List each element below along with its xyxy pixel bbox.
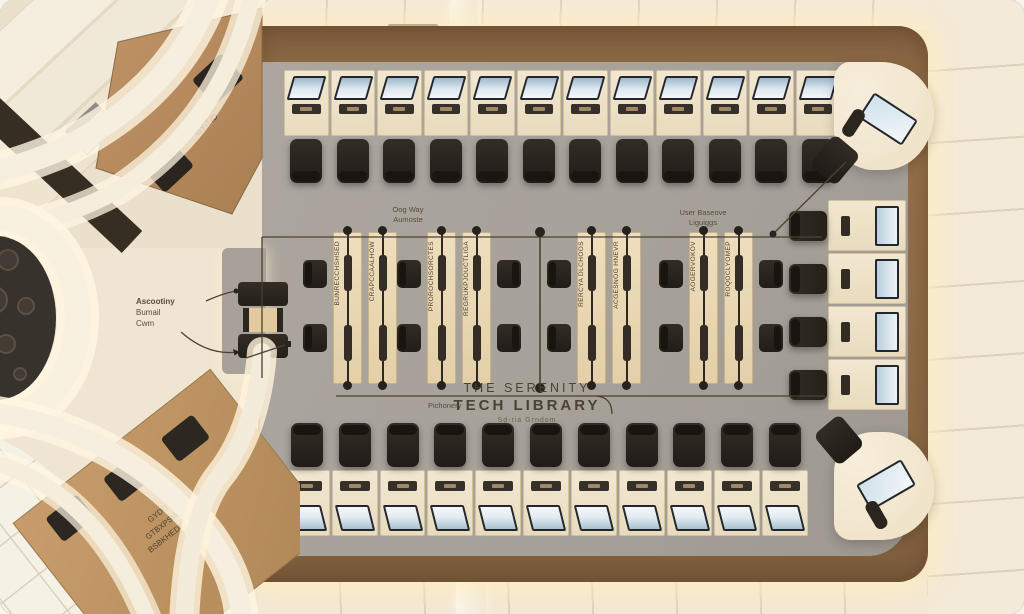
- right-station-bank: [828, 200, 906, 410]
- screen-glass: [385, 507, 420, 529]
- study-table: REGRUKPJOUCTLIGA: [462, 232, 491, 384]
- keyboard-tray: [722, 481, 752, 491]
- table-label: ROQOCLYOMEP: [725, 241, 732, 297]
- workstation: [610, 70, 655, 136]
- counter-top: [284, 70, 840, 136]
- workstation: [828, 359, 906, 410]
- chair: [789, 317, 827, 347]
- workstation: [762, 470, 808, 536]
- desk-device: [841, 269, 850, 289]
- screen-glass: [615, 78, 649, 98]
- title-line-1: THE SERENITY: [422, 381, 632, 395]
- chair: [192, 53, 244, 105]
- workstation: [424, 70, 469, 136]
- chair: [387, 423, 419, 467]
- desk-device: [841, 216, 850, 236]
- workstation: [284, 70, 329, 136]
- keyboard-tray: [435, 481, 465, 491]
- monitor-screen: [612, 76, 651, 100]
- workstation: [470, 70, 515, 136]
- screen-glass: [382, 78, 416, 98]
- tablet-screen: [858, 92, 918, 145]
- monitor-screen: [705, 76, 744, 100]
- chair: [547, 324, 571, 352]
- monitor-screen: [473, 76, 512, 100]
- monitor-screen: [382, 505, 422, 531]
- monitor-screen: [333, 76, 372, 100]
- callout-left: Ascootiny Bumail Cwm: [136, 297, 175, 329]
- callout-top-left: Oog Way Aumoste: [368, 205, 448, 225]
- screen-glass: [661, 78, 695, 98]
- study-table: RERCYA DLCHOOS: [577, 232, 606, 384]
- study-table: ACGESNOG HNEVR: [612, 232, 641, 384]
- desk-device: [863, 499, 889, 531]
- table-end-dot: [587, 226, 596, 235]
- screen-glass: [877, 314, 897, 350]
- monitor-screen: [765, 505, 805, 531]
- desk-device: [841, 322, 850, 342]
- title-line-2: TECH LIBRARY: [422, 397, 632, 414]
- workstation: [517, 70, 562, 136]
- table-lamp: [344, 255, 352, 291]
- keyboard-tray: [339, 104, 368, 114]
- table-lamp: [588, 325, 596, 361]
- keyboard-tray: [711, 104, 740, 114]
- screen-glass: [720, 507, 755, 529]
- monitor-screen: [566, 76, 605, 100]
- chair: [709, 139, 741, 183]
- table-label: BUNRECCHSHSED: [334, 241, 341, 305]
- chair: [238, 334, 288, 358]
- monitor-screen: [519, 76, 558, 100]
- screen-glass: [336, 78, 370, 98]
- chair: [238, 282, 288, 306]
- chair: [659, 260, 683, 288]
- screen-glass: [672, 507, 707, 529]
- chair: [759, 324, 783, 352]
- study-table-area: BUNRECCHSHSEDCRAPCCAALHOWPROROCHSORCTESR…: [333, 232, 753, 384]
- study-table: CRAPCCAALHOW: [368, 232, 397, 384]
- title-subtitle: Sd-ria Grndom: [422, 417, 632, 424]
- table-lamp: [473, 255, 481, 291]
- keyboard-tray: [531, 481, 561, 491]
- callout-line: Bumail: [136, 308, 175, 319]
- keyboard-tray: [478, 104, 507, 114]
- keyboard-tray: [770, 481, 800, 491]
- monitor-screen: [426, 76, 465, 100]
- keyboard-tray: [525, 104, 554, 114]
- workstation: [284, 470, 330, 536]
- monitor-screen: [659, 76, 698, 100]
- curved-wall-lower: [0, 352, 262, 614]
- screen-glass: [877, 367, 897, 403]
- screen-glass: [801, 78, 835, 98]
- upper-left-desk-label-2: GY-TID: [193, 111, 220, 137]
- table-label: RERCYA DLCHOOS: [578, 241, 585, 307]
- screen-glass: [576, 507, 611, 529]
- keyboard-tray: [804, 104, 833, 114]
- workstation: [714, 470, 760, 536]
- table-label: REGRUKPJOUCTLIGA: [463, 241, 470, 316]
- screen-glass: [568, 78, 602, 98]
- callout-line: Oog Way: [368, 205, 448, 215]
- chair: [569, 139, 601, 183]
- table-lamp: [623, 325, 631, 361]
- bottom-wall-panels: [258, 580, 1024, 614]
- chair: [397, 260, 421, 288]
- table-label: AOGERVOKOV: [690, 241, 697, 291]
- upper-left-desk-label-1: 4Geea: [187, 101, 213, 126]
- table-end-dot: [343, 226, 352, 235]
- study-table: ROQOCLYOMEP: [724, 232, 753, 384]
- screen-glass: [475, 78, 509, 98]
- study-table: BUNRECCHSHSED: [333, 232, 362, 384]
- monitor-screen: [430, 505, 470, 531]
- keyboard-tray: [675, 481, 705, 491]
- chair: [497, 260, 521, 288]
- workstation: [563, 70, 608, 136]
- workstation: [828, 306, 906, 357]
- screen-glass: [433, 507, 468, 529]
- screen-glass: [289, 507, 324, 529]
- keyboard-tray: [292, 481, 322, 491]
- screen-glass: [337, 507, 372, 529]
- table-end-dot: [699, 381, 708, 390]
- lower-left-desk-label-3: BSBKHEDELGN: [146, 510, 199, 554]
- desk-device: [841, 375, 850, 395]
- chair: [303, 260, 327, 288]
- table-lamp: [379, 325, 387, 361]
- chair: [626, 423, 658, 467]
- chair: [290, 139, 322, 183]
- monitor-screen: [875, 312, 899, 352]
- workstation: [332, 470, 378, 536]
- chair: [303, 324, 327, 352]
- study-table-cluster: RERCYA DLCHOOSACGESNOG HNEVR: [577, 232, 641, 384]
- table-end-dot: [437, 226, 446, 235]
- counter-bottom: [284, 470, 808, 536]
- workstation: [523, 470, 569, 536]
- callout-line: Cwm: [136, 319, 175, 330]
- chair: [659, 324, 683, 352]
- table-end-dot: [378, 226, 387, 235]
- table-end-dot: [622, 226, 631, 235]
- upper-left-room-floor: [0, 0, 262, 248]
- chair: [755, 139, 787, 183]
- workstation: [475, 470, 521, 536]
- keyboard-tray: [432, 104, 461, 114]
- chair: [769, 423, 801, 467]
- keyboard-tray: [385, 104, 414, 114]
- keyboard-tray: [757, 104, 786, 114]
- monitor-screen: [717, 505, 757, 531]
- workstation: [377, 70, 422, 136]
- chair: [616, 139, 648, 183]
- upper-left-wood-floor: [96, 8, 262, 214]
- keyboard-tray: [571, 104, 600, 114]
- chair: [789, 211, 827, 241]
- monitor-screen: [287, 505, 327, 531]
- table-end-dot: [734, 381, 743, 390]
- screen-glass: [859, 462, 914, 509]
- keyboard-tray: [340, 481, 370, 491]
- study-table: AOGERVOKOV: [689, 232, 718, 384]
- info-table: [243, 308, 283, 332]
- table-lamp: [438, 325, 446, 361]
- chair: [721, 423, 753, 467]
- chair: [337, 139, 369, 183]
- study-table-cluster: AOGERVOKOVROQOCLYOMEP: [689, 232, 753, 384]
- table-lamp: [379, 255, 387, 291]
- screen-glass: [877, 208, 897, 244]
- library-title: THE SERENITY TECH LIBRARY Sd-ria Grndom: [422, 381, 632, 424]
- workstation: [828, 200, 906, 251]
- monitor-screen: [478, 505, 518, 531]
- copier-appliance: [65, 103, 118, 155]
- callout-top-right: User Baseove Liguiggs: [648, 208, 758, 228]
- screen-glass: [289, 78, 323, 98]
- library-floorplan: 4Geea GY-TID: [0, 0, 1024, 614]
- table-end-dot: [343, 381, 352, 390]
- monitor-screen: [287, 76, 326, 100]
- desk-device: [840, 107, 867, 139]
- lower-left-desk-label-1: GYDO: [146, 503, 170, 525]
- screen-glass: [861, 95, 915, 143]
- screen-glass: [767, 507, 802, 529]
- monitor-screen: [875, 365, 899, 405]
- workstation: [571, 470, 617, 536]
- screen-glass: [624, 507, 659, 529]
- chair: [789, 264, 827, 294]
- keyboard-tray: [664, 104, 693, 114]
- workstation: [749, 70, 794, 136]
- chair: [497, 324, 521, 352]
- table-lamp: [344, 325, 352, 361]
- keyboard-tray: [627, 481, 657, 491]
- callout-line: Ascootiny: [136, 297, 175, 308]
- chair: [547, 260, 571, 288]
- screen-glass: [481, 507, 516, 529]
- decorative-ring-feature: [0, 218, 78, 418]
- table-label: ACGESNOG HNEVR: [613, 241, 620, 309]
- keyboard-tray: [579, 481, 609, 491]
- workstation: [667, 470, 713, 536]
- monitor-screen: [875, 206, 899, 246]
- chair: [383, 139, 415, 183]
- keyboard-tray: [618, 104, 647, 114]
- workstation: [828, 253, 906, 304]
- monitor-screen: [875, 259, 899, 299]
- workstation: [656, 70, 701, 136]
- monitor-screen: [798, 76, 837, 100]
- chair: [476, 139, 508, 183]
- upper-left-counter: [0, 100, 132, 242]
- workstation: [427, 470, 473, 536]
- keyboard-tray: [292, 104, 321, 114]
- study-table-cluster: BUNRECCHSHSEDCRAPCCAALHOW: [333, 232, 397, 384]
- monitor-screen: [752, 76, 791, 100]
- screen-glass: [877, 261, 897, 297]
- chair: [397, 324, 421, 352]
- tablet-screen: [856, 459, 916, 511]
- chair: [434, 423, 466, 467]
- callout-line: User Baseove: [648, 208, 758, 218]
- table-lamp: [700, 325, 708, 361]
- screen-glass: [429, 78, 463, 98]
- right-wall-panels: [928, 0, 1024, 614]
- screen-glass: [522, 78, 556, 98]
- lower-left-desk-label-2: GTBXPSWIR: [144, 505, 188, 542]
- chair: [530, 423, 562, 467]
- curved-wall-upper: [0, 0, 252, 230]
- info-desk: [230, 282, 296, 358]
- callout-line: Aumoste: [368, 215, 448, 225]
- corner-desk-bottom-right: [834, 432, 934, 540]
- table-label: CRAPCCAALHOW: [369, 241, 376, 301]
- monitor-screen: [335, 505, 375, 531]
- table-lamp: [588, 255, 596, 291]
- chair: [578, 423, 610, 467]
- study-table: PROROCHSORCTES: [427, 232, 456, 384]
- chair: [291, 423, 323, 467]
- workstation: [331, 70, 376, 136]
- chair: [160, 414, 210, 462]
- keyboard-tray: [483, 481, 513, 491]
- keyboard-tray: [388, 481, 418, 491]
- chair: [103, 454, 153, 502]
- study-table-cluster: PROROCHSORCTESREGRUKPJOUCTLIGA: [427, 232, 491, 384]
- table-lamp: [473, 325, 481, 361]
- monitor-screen: [621, 505, 661, 531]
- table-lamp: [623, 255, 631, 291]
- callout-line: Liguiggs: [648, 218, 758, 228]
- chair: [759, 260, 783, 288]
- table-end-dot: [472, 226, 481, 235]
- upper-left-wall-panels: [0, 0, 288, 240]
- workstation: [703, 70, 748, 136]
- table-lamp: [438, 255, 446, 291]
- chair: [662, 139, 694, 183]
- chair: [673, 423, 705, 467]
- workstation: [380, 470, 426, 536]
- table-lamp: [735, 255, 743, 291]
- chair: [339, 423, 371, 467]
- chair: [482, 423, 514, 467]
- chair: [789, 370, 827, 400]
- monitor-screen: [669, 505, 709, 531]
- screen-glass: [528, 507, 563, 529]
- workstation: [619, 470, 665, 536]
- chair: [142, 141, 194, 193]
- table-lamp: [700, 255, 708, 291]
- monitor-screen: [574, 505, 614, 531]
- chair: [523, 139, 555, 183]
- screen-glass: [708, 78, 742, 98]
- table-label: PROROCHSORCTES: [428, 241, 435, 311]
- table-end-dot: [378, 381, 387, 390]
- chair: [430, 139, 462, 183]
- lower-left-wood-table: GYDO GTBXPSWIR BSBKHEDELGN: [13, 369, 300, 614]
- table-lamp: [735, 325, 743, 361]
- monitor-screen: [380, 76, 419, 100]
- monitor-screen: [526, 505, 566, 531]
- chair: [45, 494, 95, 542]
- screen-glass: [754, 78, 788, 98]
